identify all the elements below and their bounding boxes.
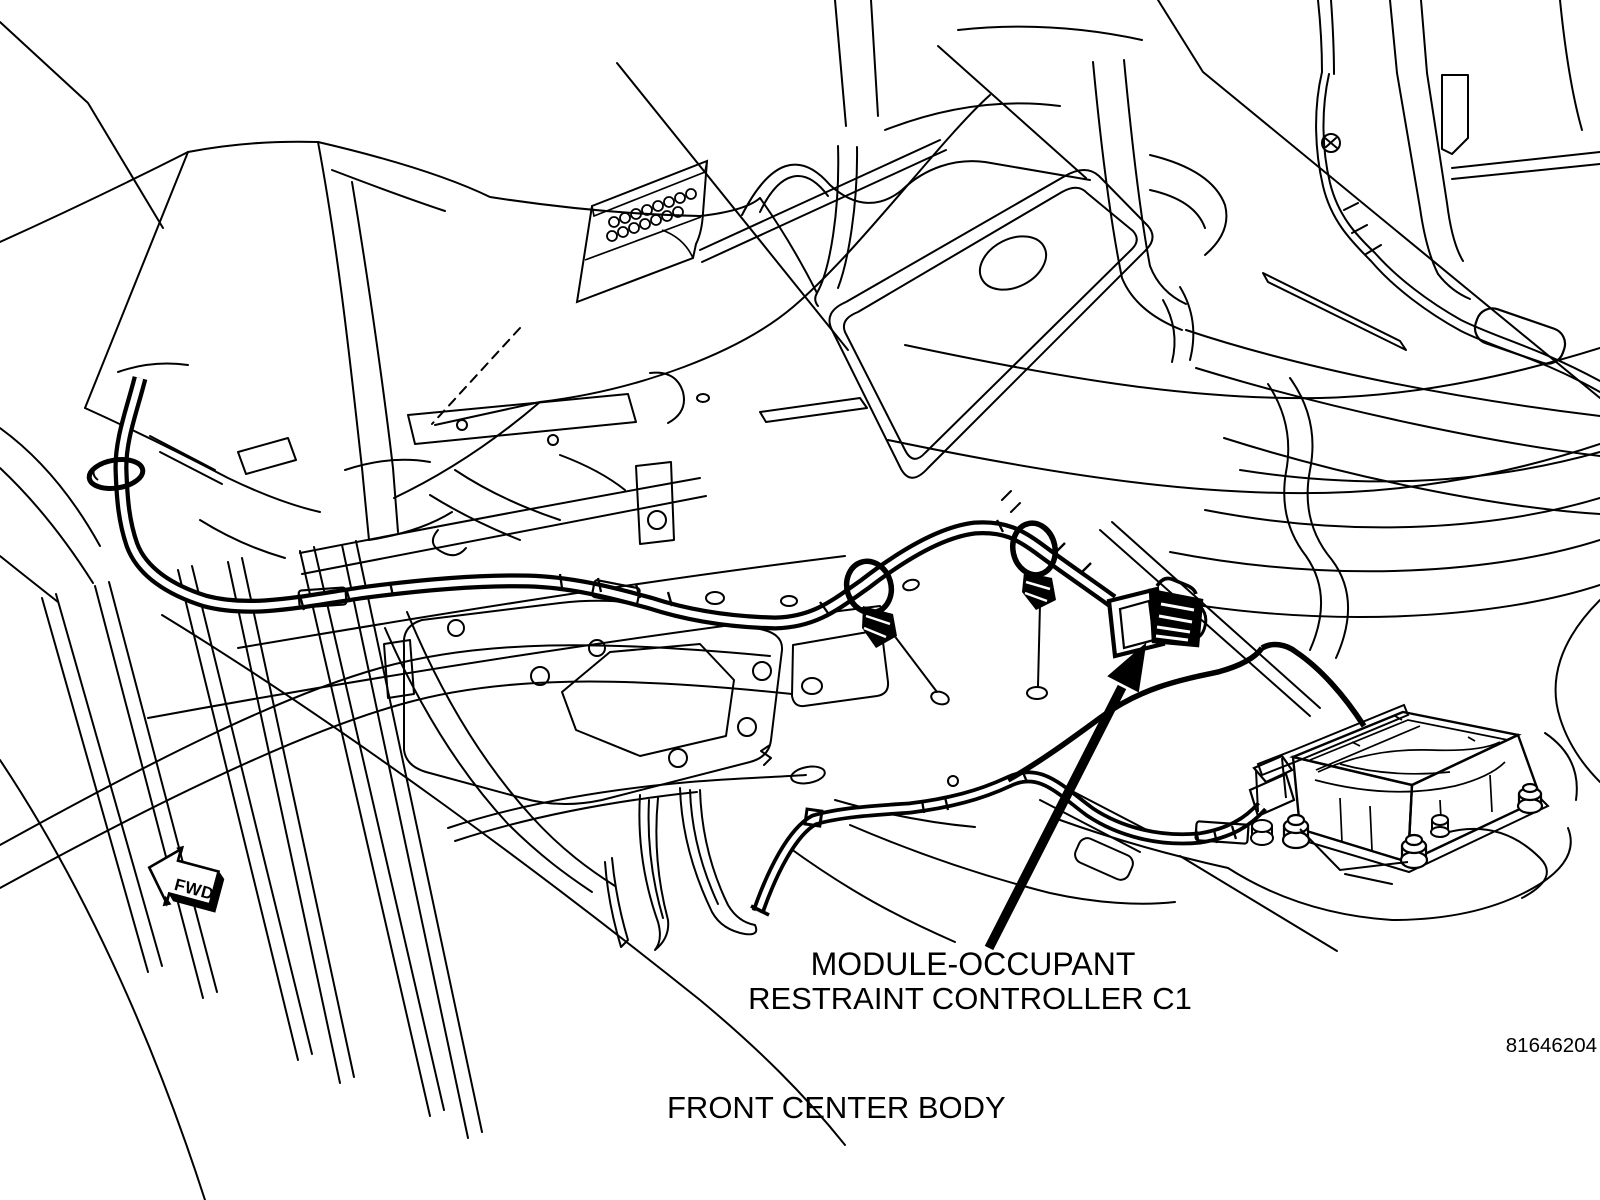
svg-text:RESTRAINT CONTROLLER C1: RESTRAINT CONTROLLER C1 [748,981,1192,1016]
svg-text:MODULE-OCCUPANT: MODULE-OCCUPANT [811,946,1136,982]
svg-text:FRONT CENTER BODY: FRONT CENTER BODY [667,1090,1006,1125]
svg-text:81646204: 81646204 [1506,1034,1597,1057]
